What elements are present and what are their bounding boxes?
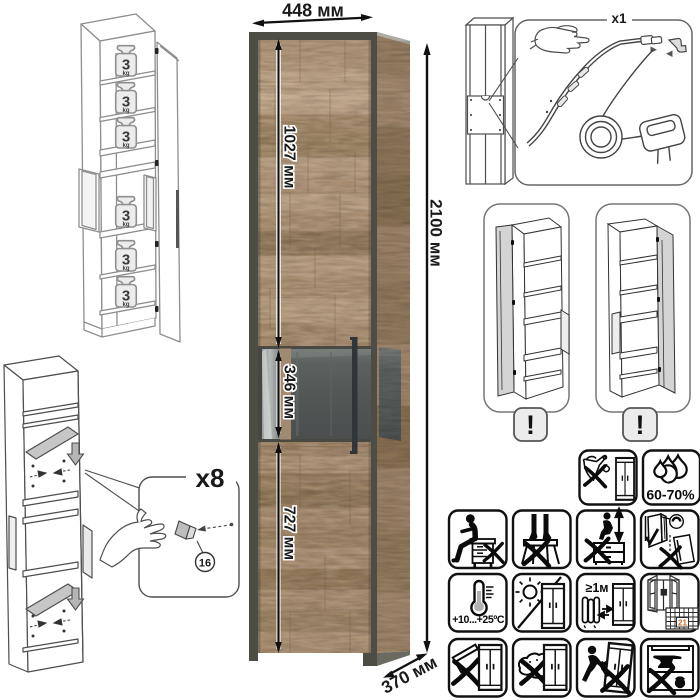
svg-text:+10...+25ºC: +10...+25ºC bbox=[452, 614, 505, 626]
svg-text:x1: x1 bbox=[611, 11, 627, 26]
svg-text:16: 16 bbox=[199, 558, 211, 570]
svg-text:1027 мм: 1027 мм bbox=[281, 126, 298, 189]
svg-text:≥1м: ≥1м bbox=[585, 581, 608, 595]
svg-text:!: ! bbox=[636, 410, 645, 440]
svg-text:2100 мм: 2100 мм bbox=[427, 199, 446, 267]
svg-text:727 мм: 727 мм bbox=[281, 506, 298, 560]
svg-text:60-70%: 60-70% bbox=[646, 487, 695, 503]
svg-text:21: 21 bbox=[678, 619, 687, 628]
svg-text:!: ! bbox=[526, 410, 535, 440]
svg-text:448 мм: 448 мм bbox=[282, 1, 344, 21]
svg-text:x8: x8 bbox=[196, 463, 225, 493]
svg-text:346 мм: 346 мм bbox=[281, 365, 298, 419]
